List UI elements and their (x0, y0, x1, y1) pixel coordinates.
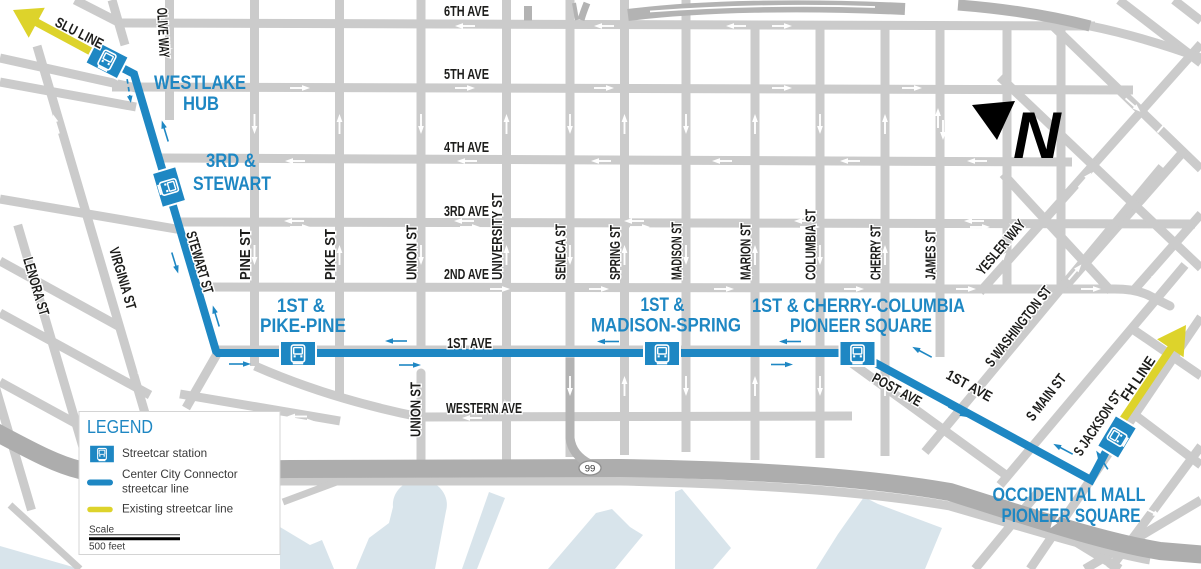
svg-text:SPRING ST: SPRING ST (608, 225, 624, 280)
svg-text:1ST &: 1ST & (277, 296, 325, 317)
svg-text:MARION ST: MARION ST (739, 223, 755, 280)
svg-text:STEWART: STEWART (193, 174, 271, 195)
svg-text:Center City Connector: Center City Connector (122, 468, 238, 481)
svg-text:JAMES ST: JAMES ST (924, 230, 940, 280)
svg-text:2ND AVE: 2ND AVE (444, 267, 489, 283)
svg-text:MADISON-SPRING: MADISON-SPRING (591, 316, 741, 337)
svg-text:PIKE-PINE: PIKE-PINE (260, 316, 346, 337)
svg-text:SENECA ST: SENECA ST (554, 224, 570, 280)
svg-text:1ST AVE: 1ST AVE (447, 336, 492, 352)
svg-text:COLUMBIA ST: COLUMBIA ST (804, 209, 820, 280)
svg-text:HUB: HUB (183, 94, 219, 115)
svg-text:1ST &: 1ST & (641, 295, 685, 316)
svg-text:WESTERN AVE: WESTERN AVE (446, 401, 522, 417)
svg-text:PIONEER SQUARE: PIONEER SQUARE (1002, 506, 1141, 527)
svg-text:6TH AVE: 6TH AVE (444, 4, 489, 20)
svg-text:5TH AVE: 5TH AVE (444, 67, 489, 83)
svg-text:CHERRY ST: CHERRY ST (869, 225, 885, 280)
svg-text:4TH AVE: 4TH AVE (444, 140, 489, 156)
svg-text:WESTLAKE: WESTLAKE (154, 73, 246, 94)
svg-text:3RD AVE: 3RD AVE (444, 204, 489, 220)
svg-text:streetcar line: streetcar line (122, 483, 189, 496)
svg-text:1ST & CHERRY-COLUMBIA: 1ST & CHERRY-COLUMBIA (752, 296, 965, 317)
svg-text:99: 99 (585, 464, 596, 475)
svg-text:500 feet: 500 feet (89, 542, 125, 553)
svg-text:Existing streetcar line: Existing streetcar line (122, 503, 233, 516)
svg-text:MADISON ST: MADISON ST (670, 222, 686, 280)
svg-text:UNION ST: UNION ST (409, 382, 425, 437)
svg-text:Streetcar station: Streetcar station (122, 447, 207, 460)
svg-text:OLIVE WAY: OLIVE WAY (153, 7, 172, 58)
svg-text:OCCIDENTAL MALL: OCCIDENTAL MALL (993, 485, 1146, 506)
svg-text:PIONEER SQUARE: PIONEER SQUARE (790, 316, 932, 337)
svg-text:UNION ST: UNION ST (405, 225, 421, 280)
svg-text:PIKE ST: PIKE ST (323, 229, 339, 280)
svg-text:3RD &: 3RD & (206, 151, 256, 172)
svg-text:PINE ST: PINE ST (238, 229, 254, 280)
svg-text:Scale: Scale (89, 525, 114, 536)
svg-text:UNIVERSITY ST: UNIVERSITY ST (490, 193, 506, 280)
svg-text:N: N (1013, 98, 1062, 172)
svg-text:LEGEND: LEGEND (87, 417, 153, 437)
